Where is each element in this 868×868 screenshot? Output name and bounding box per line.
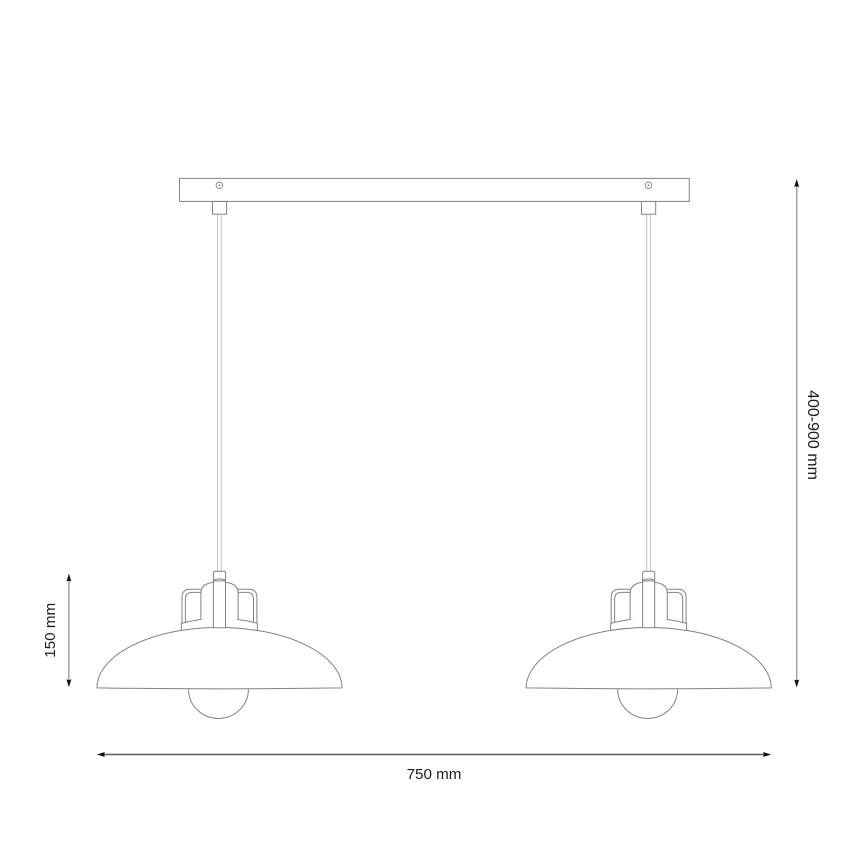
svg-text:150 mm: 150 mm [42, 603, 59, 658]
svg-text:750 mm: 750 mm [407, 766, 462, 783]
svg-text:400-900 mm: 400-900 mm [804, 390, 821, 480]
